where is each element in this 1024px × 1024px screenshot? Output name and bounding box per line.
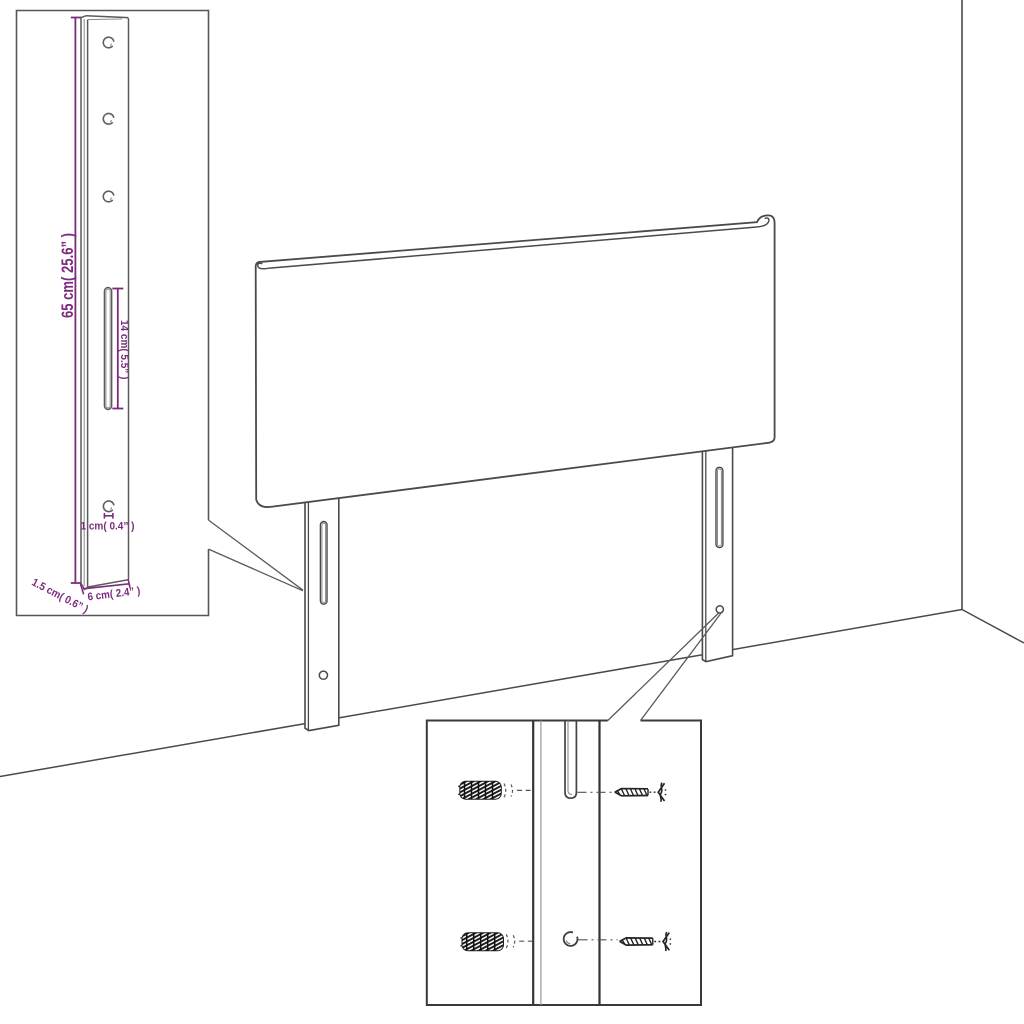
svg-text:14 cm( 5.5” ): 14 cm( 5.5” ) bbox=[118, 320, 130, 380]
svg-text:1 cm( 0.4” ): 1 cm( 0.4” ) bbox=[81, 521, 135, 533]
svg-text:65 cm( 25.6” ): 65 cm( 25.6” ) bbox=[59, 233, 77, 318]
